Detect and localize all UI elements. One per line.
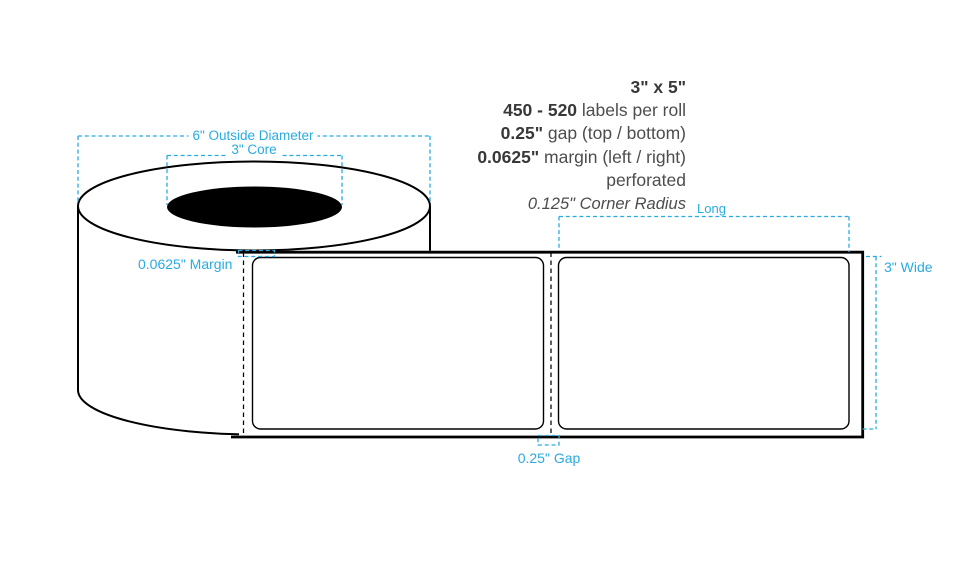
gap-label: 0.25" Gap [518,450,581,467]
spec-line-perforated: perforated [477,169,686,192]
spec-block: 3" x 5" 450 - 520 labels per roll 0.25" … [477,76,686,216]
roll-core [167,187,342,228]
core-label: 3" Core [227,142,280,158]
margin-label: 0.0625" Margin [138,256,232,273]
long-label: Long [697,201,726,217]
label-1 [253,258,544,430]
spec-line-labels-per-roll: 450 - 520 labels per roll [477,99,686,122]
long-bracket [559,217,849,253]
label-roll-diagram: 6" Outside Diameter 3" Core 0.0625" Marg… [0,0,977,587]
wide-label: 3" Wide [884,259,933,276]
spec-line-corner-radius: 0.125" Corner Radius [477,192,686,216]
label-2 [559,258,850,430]
spec-line-gap: 0.25" gap (top / bottom) [477,122,686,145]
spec-line-size: 3" x 5" [477,76,686,99]
spec-line-margin: 0.0625" margin (left / right) [477,146,686,169]
wide-bracket [863,257,882,430]
